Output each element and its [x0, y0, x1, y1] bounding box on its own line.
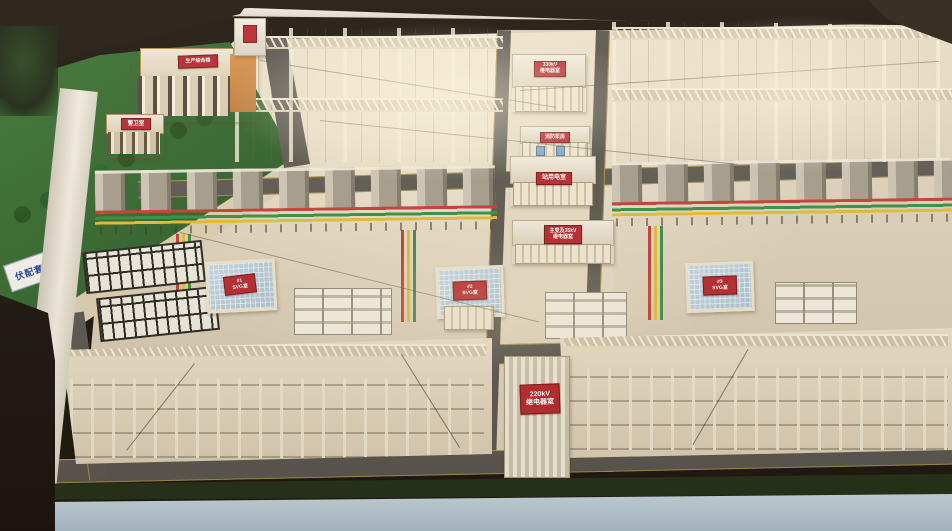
container-group	[545, 292, 627, 339]
svg-room-1-sign: #1 SVG室	[223, 273, 257, 296]
disconnect-switch-field	[566, 368, 948, 450]
relay-room-220kv-building	[504, 356, 570, 478]
sign-line: SVG室	[462, 290, 478, 296]
sign-line: 生产综合楼	[185, 58, 210, 65]
tree-row	[14, 206, 31, 223]
production-building-sign: 生产综合楼	[178, 54, 218, 68]
sign-line: 警卫室	[128, 121, 145, 127]
guard-room-sign: 警卫室	[121, 118, 151, 130]
building-walls	[515, 244, 611, 264]
vertical-busbar-stack	[401, 230, 417, 322]
building-side-orange	[230, 54, 256, 112]
rooftop-tower	[234, 18, 266, 56]
svg-room-3-sign: #3 SVG室	[703, 275, 738, 295]
model-photo: 220kV 继电器室 330kV 继电器室 消防泵房 站用电室 主变及35kV …	[0, 0, 952, 531]
blurred-tree	[0, 26, 58, 116]
svg-room-3-building: #3 SVG室	[685, 261, 755, 313]
fire-pump-sign: 消防泵房	[540, 132, 570, 143]
guard-room-building: 警卫室	[106, 114, 164, 158]
station-power-building: 站用电室	[510, 156, 596, 206]
building-facade-windows	[108, 132, 160, 154]
production-building: 生产综合楼	[132, 46, 258, 122]
relay-room-220kv-sign: 220kV 继电器室	[519, 383, 560, 414]
sign-line: 继电器室	[553, 235, 573, 241]
station-power-sign: 站用电室	[536, 172, 572, 185]
bottom-switchyard-right	[560, 328, 952, 458]
sign-line: SVG室	[232, 284, 248, 292]
building-facade-windows	[138, 76, 230, 116]
top-switchyard-right	[612, 22, 952, 162]
window	[556, 146, 565, 156]
building-walls	[513, 182, 593, 206]
window	[536, 146, 545, 156]
disconnect-switch-field	[70, 378, 484, 458]
gantry-beam	[612, 88, 952, 102]
sign-line: 继电器室	[540, 69, 560, 75]
bottom-switchyard-left	[62, 336, 492, 464]
sign-line: 站用电室	[542, 175, 566, 182]
gantry-beam	[235, 36, 503, 49]
gantry-beam	[612, 27, 952, 40]
sign-line: 消防泵房	[545, 135, 565, 141]
relay-room-330kv-building: 330kV 继电器室	[512, 54, 586, 112]
gantry-beam	[235, 98, 503, 112]
main-transformer-35kv-sign: 主变及35kV 继电器室	[544, 225, 582, 244]
table-front-face	[40, 494, 952, 531]
sign-line: SVG室	[712, 285, 728, 291]
top-switchyard-left	[235, 28, 503, 162]
container-group	[775, 282, 857, 324]
sign-line: 继电器室	[526, 399, 554, 408]
dark-backdrop-left-lower	[0, 295, 55, 531]
svg-room-1-building: #1 SVG室	[205, 258, 278, 314]
relay-room-330kv-sign: 330kV 继电器室	[534, 61, 566, 77]
container-group	[294, 288, 392, 335]
rooftop-sign	[243, 25, 257, 43]
vertical-busbar-stack	[648, 226, 664, 320]
main-transformer-35kv-building: 主变及35kV 继电器室	[512, 220, 614, 264]
svg-room-2-sign: #2 SVG室	[453, 280, 488, 300]
